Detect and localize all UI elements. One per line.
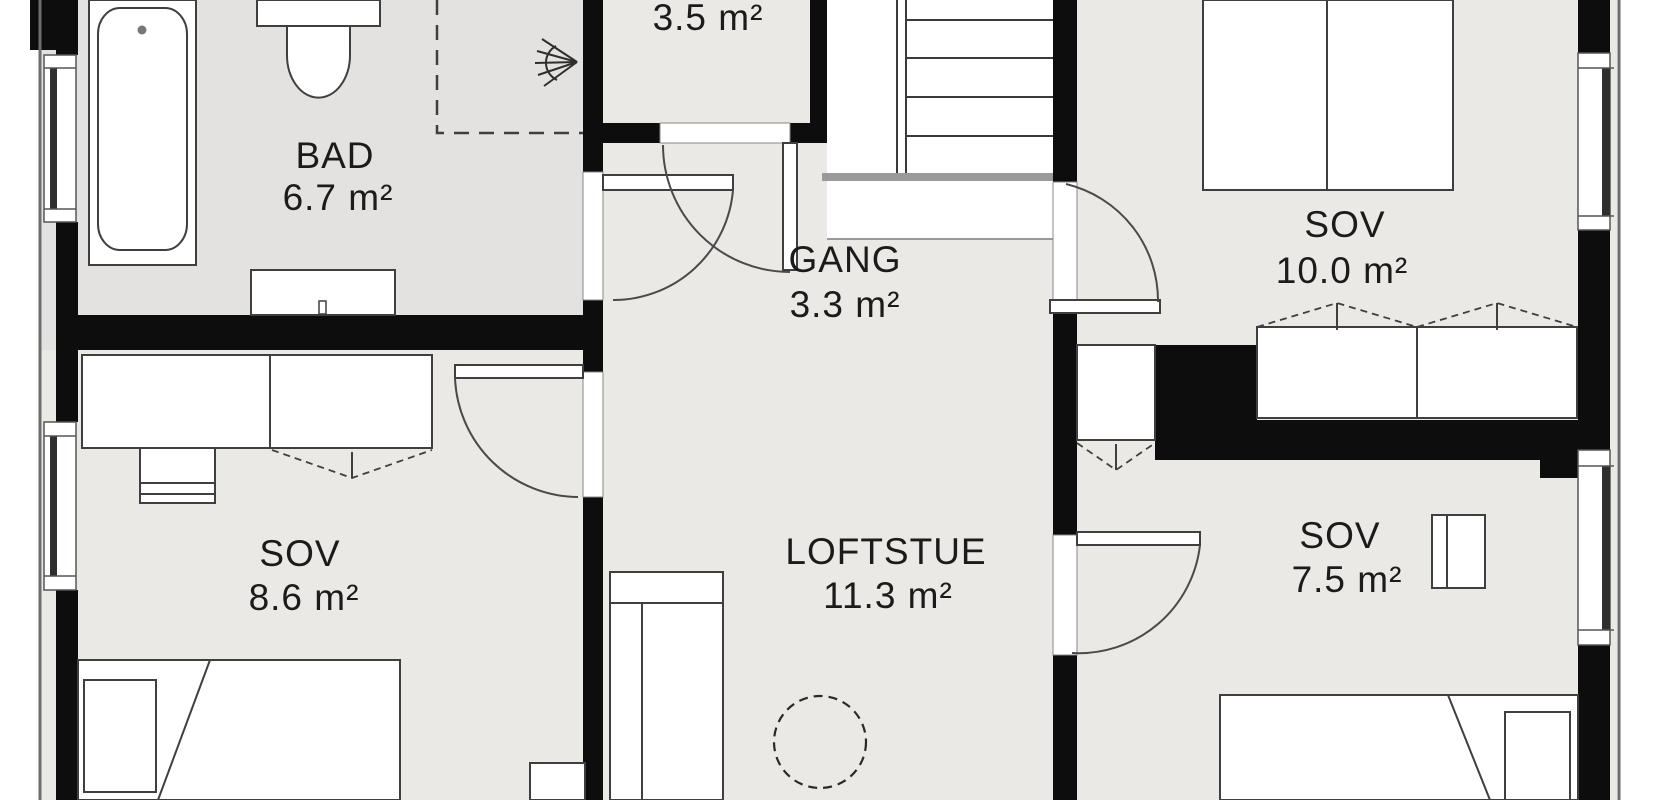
- door-opening-sov-86: [583, 372, 603, 497]
- door-leaf-sov-75: [1077, 532, 1200, 545]
- wall: [810, 0, 827, 143]
- window-sov-75: [1578, 450, 1614, 645]
- sov-10-name-label: SOV: [1304, 204, 1385, 245]
- vanity-sink: [251, 270, 395, 315]
- storage-area-label: 3.5 m²: [653, 0, 764, 38]
- floorplan-canvas: 3.5 m² BAD 6.7 m² GANG 3.3 m² SOV 10.0 m…: [0, 0, 1670, 800]
- sov-86-name-label: SOV: [259, 533, 340, 574]
- door-opening-storage: [660, 123, 790, 143]
- sov-75-area-label: 7.5 m²: [1292, 559, 1403, 600]
- wall: [1578, 230, 1610, 450]
- wall: [1053, 655, 1077, 800]
- wall: [1578, 0, 1610, 53]
- double-bed: [1203, 0, 1453, 190]
- door-opening-bad: [583, 172, 603, 300]
- faucet-icon: [319, 301, 326, 314]
- pillow: [84, 680, 156, 792]
- nightstand: [1432, 515, 1485, 588]
- gang-name-label: GANG: [789, 239, 902, 280]
- single-bed: [78, 660, 400, 800]
- wall: [1053, 0, 1077, 182]
- loftstue-area-label: 11.3 m²: [823, 575, 953, 616]
- exterior-right: [1617, 0, 1670, 800]
- wall: [56, 590, 78, 800]
- door-leaf-sov-86: [455, 365, 583, 378]
- wall: [603, 123, 660, 143]
- door-opening-sov-10: [1053, 182, 1077, 300]
- stairwell-void: [827, 0, 1053, 240]
- wall: [56, 315, 603, 350]
- bathtub-drain: [138, 26, 147, 35]
- sov-10-area-label: 10.0 m²: [1276, 250, 1408, 291]
- bad-name-label: BAD: [295, 135, 374, 176]
- floorplan-drawing: 3.5 m² BAD 6.7 m² GANG 3.3 m² SOV 10.0 m…: [0, 0, 1670, 800]
- exterior-left: [0, 0, 40, 800]
- sofa: [610, 572, 723, 800]
- door-leaf-sov-10: [1050, 300, 1160, 313]
- window-sov-86: [44, 422, 76, 590]
- single-bed: [1220, 695, 1578, 800]
- stair-landing-edge: [822, 173, 1053, 181]
- staircase: [822, 0, 1053, 240]
- bathtub: [89, 0, 196, 265]
- wall: [583, 497, 603, 800]
- wall: [583, 0, 603, 172]
- chair: [140, 448, 215, 503]
- pillow: [1505, 712, 1570, 800]
- dresser: [530, 763, 585, 800]
- window-bad: [44, 55, 76, 222]
- window-sov-10: [1578, 53, 1614, 230]
- gang-area-label: 3.3 m²: [790, 284, 901, 325]
- door-opening-sov-75: [1053, 535, 1077, 655]
- wall: [56, 0, 78, 55]
- sov-75-name-label: SOV: [1299, 515, 1380, 556]
- desk: [82, 355, 270, 448]
- wall: [30, 0, 56, 50]
- loftstue-name-label: LOFTSTUE: [785, 531, 986, 572]
- bad-area-label: 6.7 m²: [283, 177, 394, 218]
- wall: [1053, 300, 1077, 535]
- sov-86-area-label: 8.6 m²: [249, 577, 360, 618]
- wall: [1578, 645, 1610, 800]
